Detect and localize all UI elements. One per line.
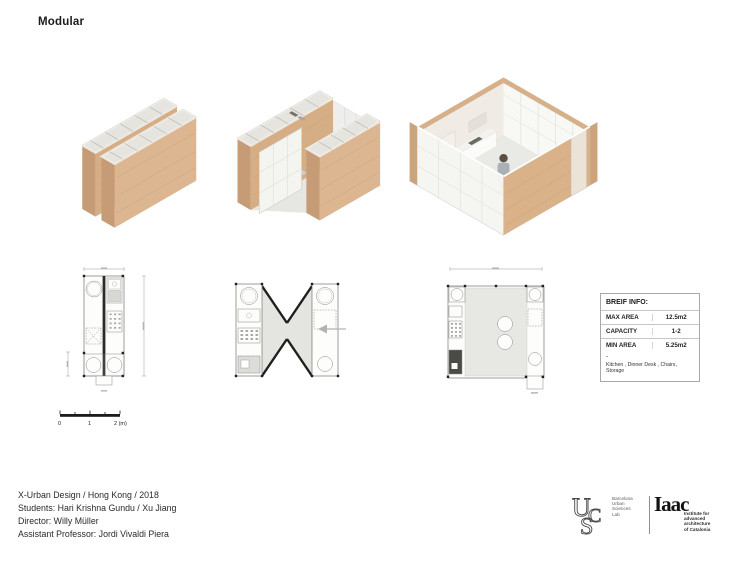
row-value: 12.5m2 — [652, 314, 699, 321]
plan-open — [436, 262, 556, 396]
brief-info-title: BREIF INFO: — [601, 294, 699, 310]
plan-closed — [58, 264, 150, 398]
note-dash: - — [601, 352, 699, 359]
ucs-logo-monogram: U C S — [568, 492, 610, 536]
scale-label-2: 2 (m) — [114, 421, 127, 427]
iaac-text-line: of Catalonia — [684, 527, 710, 532]
credits-block: X-Urban Design / Hong Kong / 2018 Studen… — [18, 489, 176, 541]
axon-view-closed — [42, 76, 222, 235]
row-label: CAPACITY — [601, 328, 652, 335]
row-value: 5.25m2 — [652, 342, 699, 349]
table-row: CAPACITY 1-2 — [601, 324, 699, 338]
row-label: MAX AREA — [601, 314, 652, 321]
credit-line: Assistant Professor: Jordi Vivaldi Piera — [18, 528, 176, 541]
row-value: 1-2 — [652, 328, 699, 335]
table-row: MIN AREA 5.25m2 — [601, 338, 699, 352]
door-leaf — [590, 122, 597, 185]
page-title: Modular — [38, 16, 84, 28]
logo-divider — [649, 496, 650, 534]
credit-line: Students: Hari Krishna Gundu / Xu Jiang — [18, 502, 176, 515]
floor — [465, 288, 527, 376]
ucs-logo-text: Barcelona Urban Sciences Lab — [612, 496, 633, 517]
unfolded-floor — [262, 286, 312, 376]
plan-half-open — [222, 276, 352, 388]
ucs-text-line: Sciences — [612, 506, 633, 511]
credit-line: Director: Willy Müller — [18, 515, 176, 528]
furniture-note: Kitchen , Dinner Desk , Chairs, Storage — [601, 359, 699, 374]
wall-end — [410, 122, 417, 185]
ucs-text-line: Lab — [612, 512, 633, 517]
scale-label-1: 1 — [88, 421, 91, 427]
iaac-logo-text: Institute for advanced architecture of C… — [684, 511, 710, 532]
brief-info-table: BREIF INFO: MAX AREA 12.5m2 CAPACITY 1-2… — [600, 293, 700, 382]
table-row: MAX AREA 12.5m2 — [601, 310, 699, 324]
ucs-letter-s: S — [580, 514, 593, 536]
axon-view-open — [406, 66, 602, 244]
iaac-text-line: architecture — [684, 521, 710, 526]
credit-line: X-Urban Design / Hong Kong / 2018 — [18, 489, 176, 502]
row-label: MIN AREA — [601, 342, 652, 349]
presentation-board: Modular — [0, 0, 730, 566]
door-opening — [571, 129, 587, 197]
scale-label-0: 0 — [58, 421, 61, 427]
scale-bar: 0 1 2 (m) — [56, 406, 132, 432]
axon-view-half-open — [210, 72, 382, 238]
